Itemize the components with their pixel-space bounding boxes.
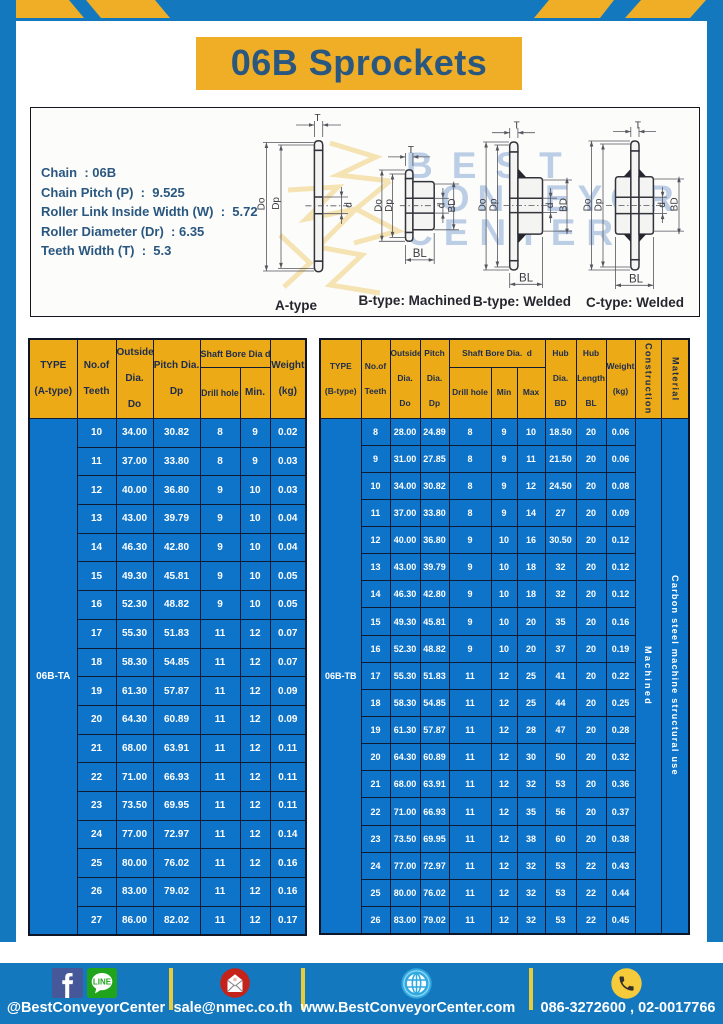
svg-text:Do: Do — [374, 199, 385, 212]
svg-text:C-type: Welded: C-type: Welded — [586, 295, 684, 310]
svg-text:Do: Do — [478, 198, 489, 211]
svg-text:Dp: Dp — [271, 197, 282, 210]
svg-text:BD: BD — [670, 197, 681, 211]
svg-text:BD: BD — [447, 199, 458, 213]
svg-text:BL: BL — [629, 274, 644, 286]
svg-text:A-type: A-type — [275, 298, 317, 313]
svg-text:BD: BD — [559, 198, 570, 212]
svg-text:B-type: Welded: B-type: Welded — [473, 294, 571, 309]
svg-text:T: T — [514, 121, 520, 132]
svg-text:Dp: Dp — [489, 198, 500, 211]
svg-text:Do: Do — [583, 198, 594, 211]
svg-text:d: d — [657, 202, 668, 208]
svg-text:Dp: Dp — [594, 198, 605, 211]
svg-text:T: T — [314, 113, 320, 124]
svg-text:BL: BL — [519, 273, 534, 285]
svg-text:Do: Do — [257, 197, 268, 210]
svg-text:d: d — [344, 202, 355, 208]
svg-text:BL: BL — [413, 248, 428, 260]
svg-text:T: T — [408, 145, 414, 156]
svg-text:Dp: Dp — [384, 199, 395, 212]
svg-text:B-type: Machined: B-type: Machined — [358, 293, 471, 308]
svg-text:LINE: LINE — [93, 978, 112, 987]
svg-text:d: d — [545, 203, 556, 209]
svg-text:T: T — [635, 121, 641, 132]
svg-text:d: d — [437, 203, 448, 209]
